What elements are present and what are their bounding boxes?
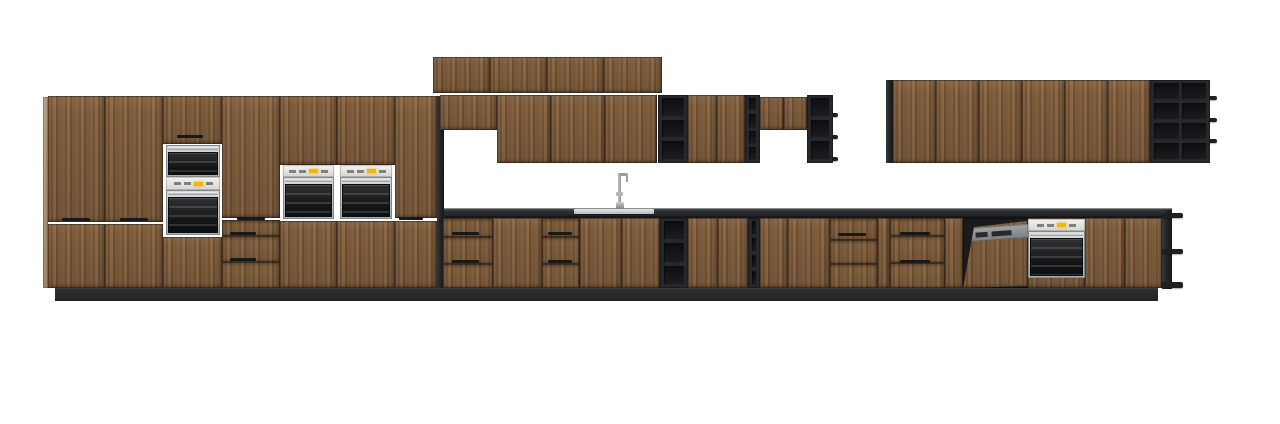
dishwasher-open[interactable]	[963, 218, 1028, 288]
tall-door-upper[interactable]	[222, 96, 280, 218]
base-door[interactable]	[945, 218, 963, 288]
base-filler-door[interactable]	[878, 218, 890, 288]
appliance-tower-bottom-door[interactable]	[280, 221, 337, 288]
tall-door-upper[interactable]	[105, 96, 163, 222]
kitchen-render-canvas[interactable]	[0, 0, 1280, 424]
sink-base-door[interactable]	[622, 218, 660, 288]
tall-door-lower[interactable]	[105, 224, 163, 288]
wall-door[interactable]	[551, 95, 605, 163]
wall-door[interactable]	[605, 95, 657, 163]
shelf-fin	[1210, 96, 1217, 100]
shelf-fin	[1162, 282, 1183, 288]
base-drawer[interactable]	[443, 264, 493, 288]
plinth	[55, 288, 1158, 301]
wall-door[interactable]	[688, 95, 717, 163]
appliance-tower-top-door[interactable]	[280, 96, 337, 165]
door-handle	[177, 135, 203, 138]
base-door[interactable]	[760, 218, 788, 288]
wall-run-edge-panel	[886, 80, 893, 163]
tall-door-upper[interactable]	[395, 96, 437, 218]
wall-door[interactable]	[1022, 80, 1065, 163]
shelf-fin	[1162, 213, 1183, 218]
wall-door[interactable]	[979, 80, 1022, 163]
sink-basin[interactable]	[574, 209, 654, 214]
wall-top-door[interactable]	[547, 57, 604, 93]
tall-door-lower[interactable]	[395, 221, 437, 288]
base-door[interactable]	[788, 218, 830, 288]
base-drawer[interactable]	[890, 236, 945, 263]
base-door[interactable]	[688, 218, 718, 288]
tall-drawer[interactable]	[222, 262, 280, 288]
shelf-fin	[1210, 118, 1217, 122]
drawer-handle	[548, 260, 572, 263]
shelf-fin	[833, 113, 838, 117]
oven-control-panel	[340, 165, 392, 177]
wall-door[interactable]	[717, 95, 745, 163]
wall-top-door[interactable]	[490, 57, 547, 93]
drawer-handle	[900, 260, 930, 263]
countertop	[441, 208, 1172, 218]
wall-cabinet-short[interactable]	[440, 95, 497, 130]
dishwasher-control-panel	[969, 224, 1028, 242]
appliance-tower-bottom-door[interactable]	[337, 221, 395, 288]
wall-open-shelf[interactable]	[658, 95, 688, 163]
base-drawer[interactable]	[542, 264, 580, 288]
drawer-handle	[230, 258, 256, 261]
shelf-fin	[833, 157, 838, 161]
wall-door[interactable]	[893, 80, 936, 163]
built-in-oven[interactable]	[283, 177, 334, 219]
drawer-handle	[900, 232, 930, 235]
drawer-handle	[838, 233, 866, 236]
base-drawer[interactable]	[890, 263, 945, 288]
wall-door[interactable]	[936, 80, 979, 163]
base-wine-shelf[interactable]	[748, 218, 760, 288]
door-handle	[62, 218, 90, 221]
wall-top-door[interactable]	[604, 57, 662, 93]
appliance-tower-bottom-door[interactable]	[163, 237, 222, 288]
tall-door-lower[interactable]	[48, 224, 105, 288]
base-door[interactable]	[1125, 218, 1162, 288]
oven-control-panel	[166, 177, 220, 190]
wall-top-door[interactable]	[433, 57, 490, 93]
wall-door[interactable]	[497, 95, 551, 163]
wall-short-door[interactable]	[760, 97, 784, 130]
base-door[interactable]	[718, 218, 748, 288]
built-in-oven[interactable]	[166, 190, 220, 235]
faucet[interactable]	[612, 172, 629, 209]
built-in-oven[interactable]	[340, 177, 392, 219]
shelf-fin	[833, 135, 838, 139]
dishwasher-door[interactable]	[963, 218, 1028, 288]
base-drawer[interactable]	[830, 264, 878, 288]
base-open-shelf[interactable]	[660, 218, 688, 288]
appliance-tower-top-door[interactable]	[337, 96, 395, 165]
shelf-fin	[1210, 139, 1217, 143]
wall-door[interactable]	[1065, 80, 1108, 163]
shelf-fin	[1162, 249, 1183, 254]
wall-short-door[interactable]	[784, 97, 807, 130]
tall-door-upper[interactable]	[48, 96, 105, 222]
base-door[interactable]	[1085, 218, 1125, 288]
oven-control-panel	[283, 165, 334, 177]
wall-wine-shelf[interactable]	[745, 95, 760, 163]
base-drawer[interactable]	[830, 240, 878, 264]
drawer-handle	[452, 260, 479, 263]
door-handle	[120, 218, 148, 221]
wall-open-shelf[interactable]	[807, 95, 833, 163]
wall-door[interactable]	[1108, 80, 1150, 163]
base-drawer[interactable]	[830, 218, 878, 240]
door-handle	[399, 217, 423, 220]
drawer-handle	[452, 232, 479, 235]
drawer-handle	[230, 232, 256, 235]
base-door[interactable]	[580, 218, 622, 288]
wall-open-shelf-grid[interactable]	[1150, 80, 1210, 163]
built-in-oven[interactable]	[1028, 231, 1085, 278]
drawer-handle	[548, 232, 572, 235]
oven-control-panel	[1028, 219, 1085, 231]
compact-oven[interactable]	[166, 145, 220, 177]
base-door[interactable]	[493, 218, 542, 288]
